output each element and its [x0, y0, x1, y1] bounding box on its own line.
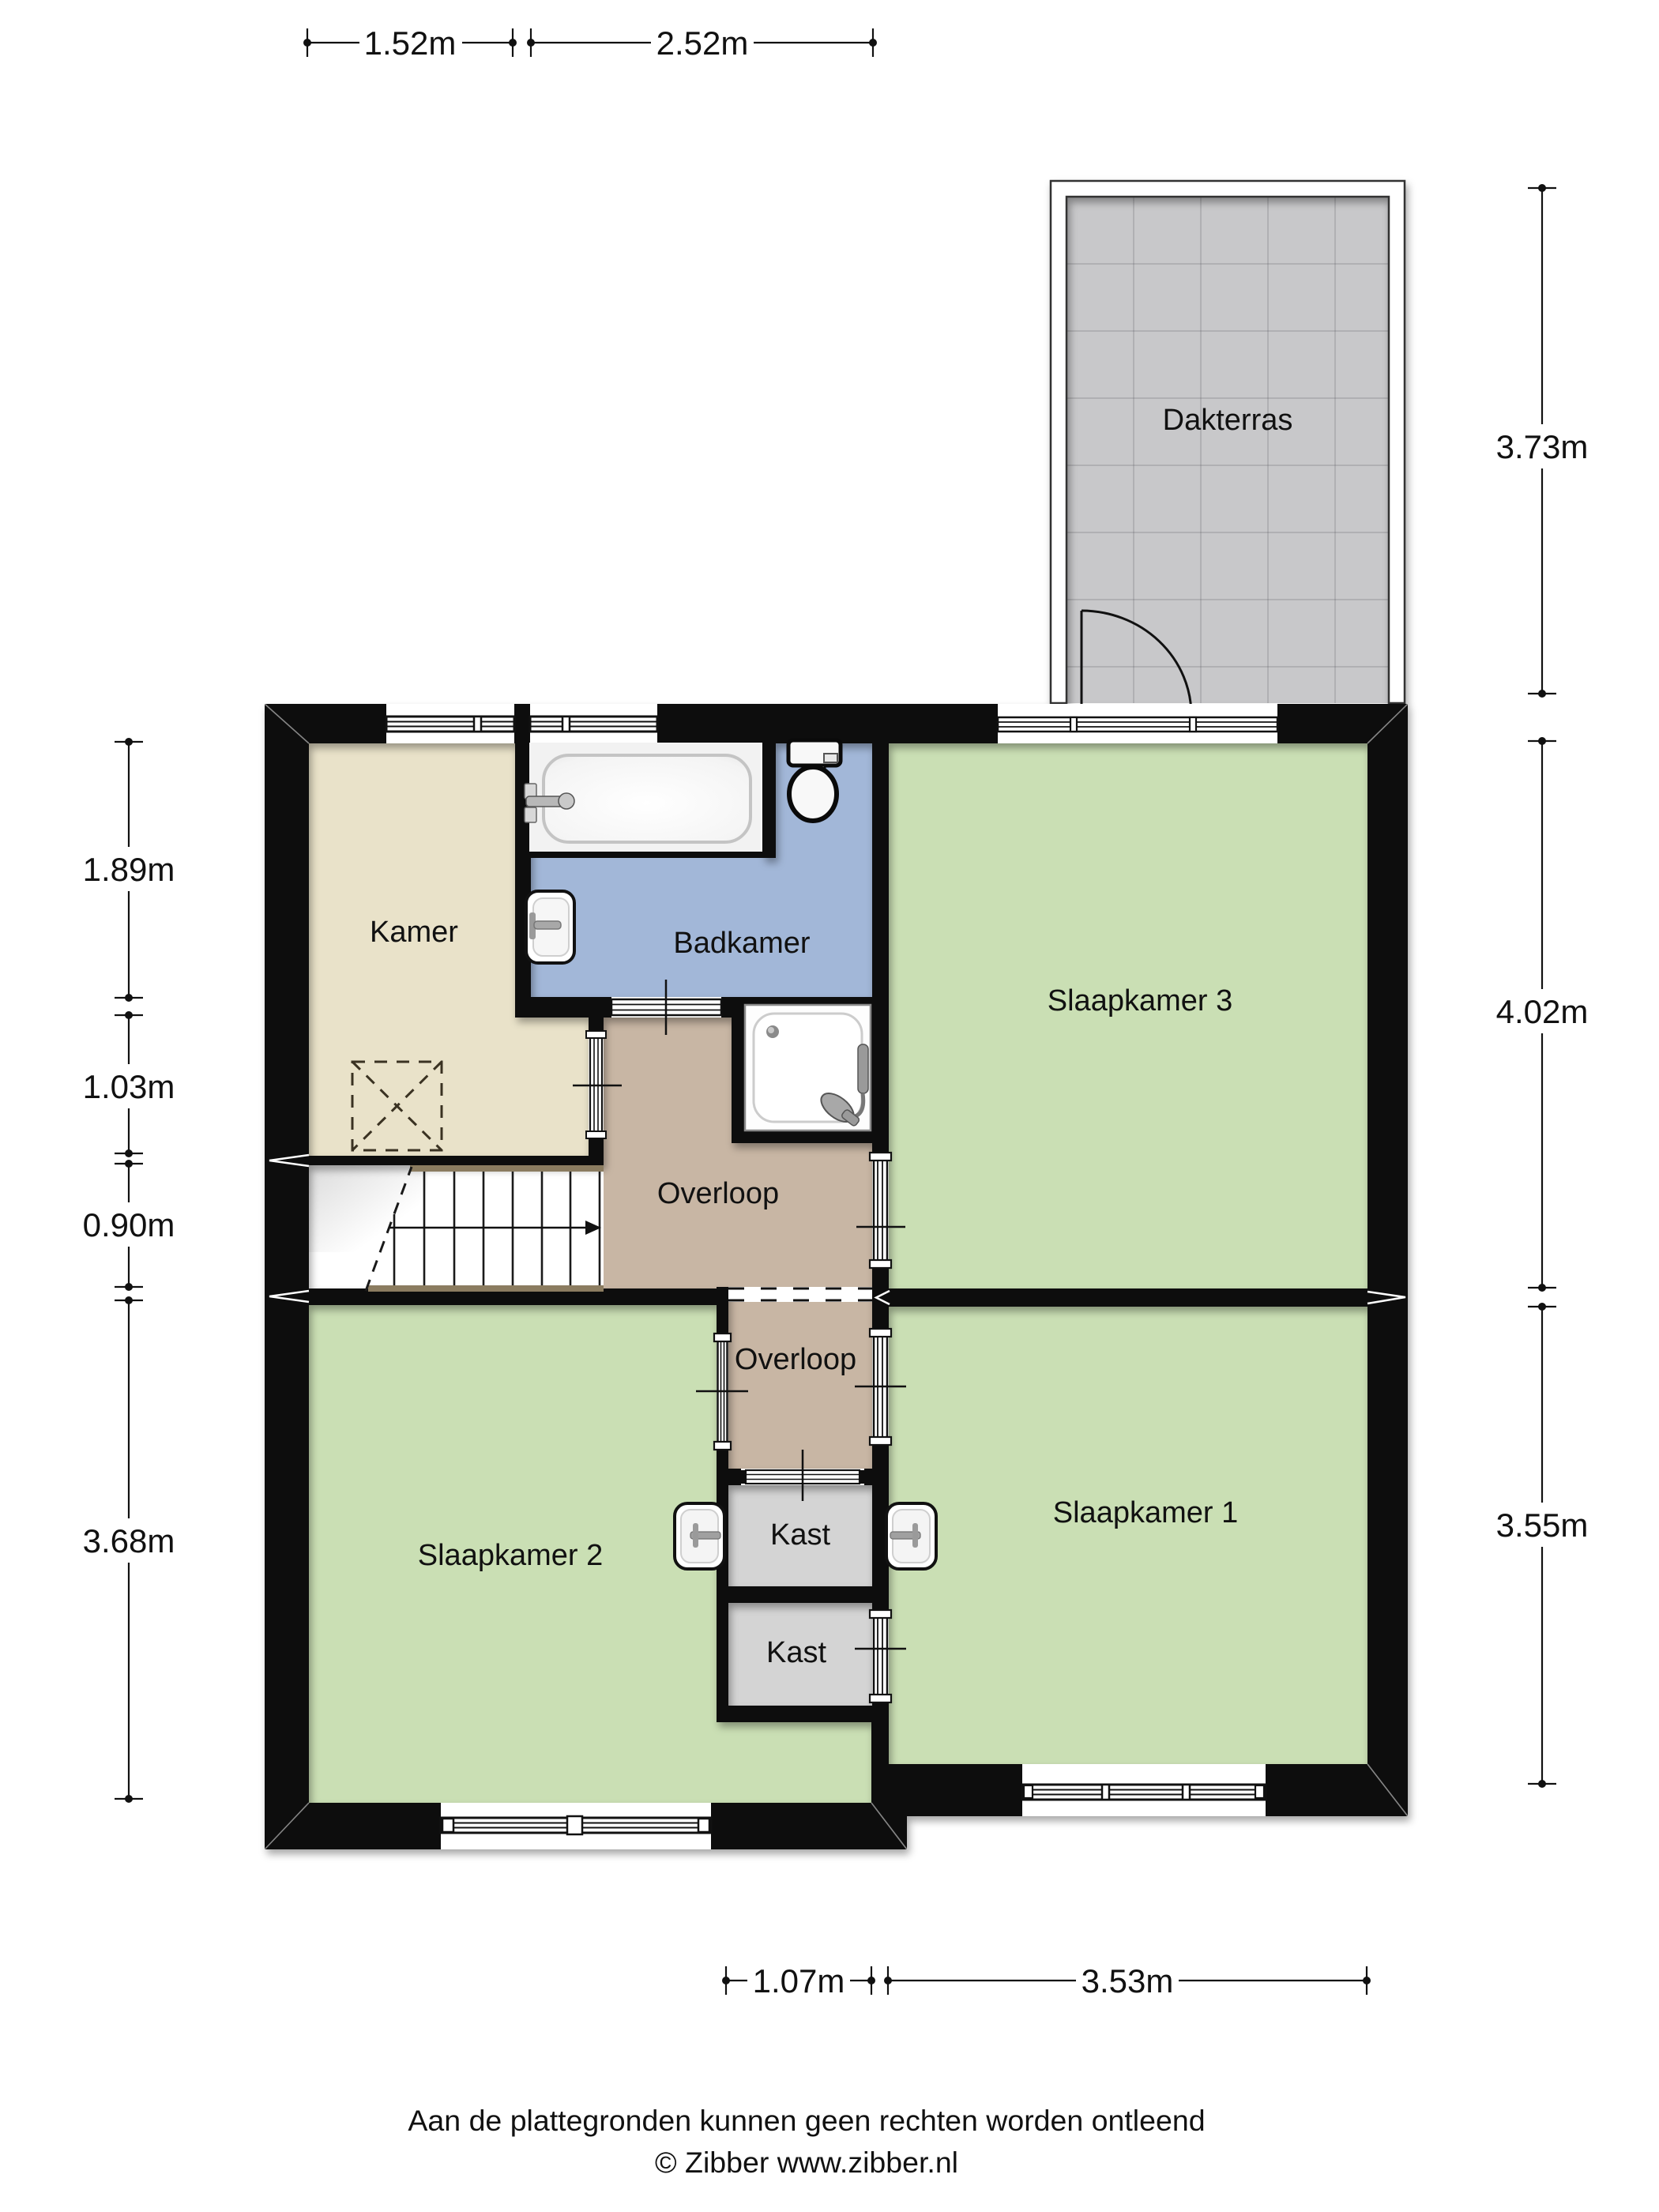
svg-text:© Zibber www.zibber.nl: © Zibber www.zibber.nl [655, 2146, 958, 2179]
svg-text:3.53m: 3.53m [1082, 1962, 1174, 1999]
svg-text:3.73m: 3.73m [1496, 428, 1589, 465]
svg-text:Overloop: Overloop [657, 1177, 779, 1210]
svg-text:Badkamer: Badkamer [673, 927, 811, 960]
svg-text:Dakterras: Dakterras [1163, 404, 1293, 437]
svg-text:0.90m: 0.90m [83, 1206, 175, 1243]
svg-text:3.55m: 3.55m [1496, 1507, 1589, 1544]
svg-text:1.89m: 1.89m [83, 851, 175, 888]
svg-text:1.52m: 1.52m [364, 24, 457, 62]
svg-text:Slaapkamer 3: Slaapkamer 3 [1048, 984, 1232, 1018]
svg-text:1.07m: 1.07m [753, 1962, 845, 1999]
svg-text:Slaapkamer 1: Slaapkamer 1 [1053, 1496, 1238, 1529]
svg-text:4.02m: 4.02m [1496, 993, 1589, 1030]
svg-text:Slaapkamer 2: Slaapkamer 2 [418, 1539, 603, 1572]
svg-text:3.68m: 3.68m [83, 1522, 175, 1559]
svg-text:2.52m: 2.52m [656, 24, 749, 62]
svg-text:1.03m: 1.03m [83, 1068, 175, 1105]
svg-text:Overloop: Overloop [735, 1343, 856, 1376]
svg-text:Kamer: Kamer [370, 916, 458, 949]
svg-text:Kast: Kast [770, 1518, 830, 1552]
svg-text:Kast: Kast [766, 1636, 826, 1669]
svg-text:Aan de plattegronden kunnen ge: Aan de plattegronden kunnen geen rechten… [408, 2104, 1205, 2137]
